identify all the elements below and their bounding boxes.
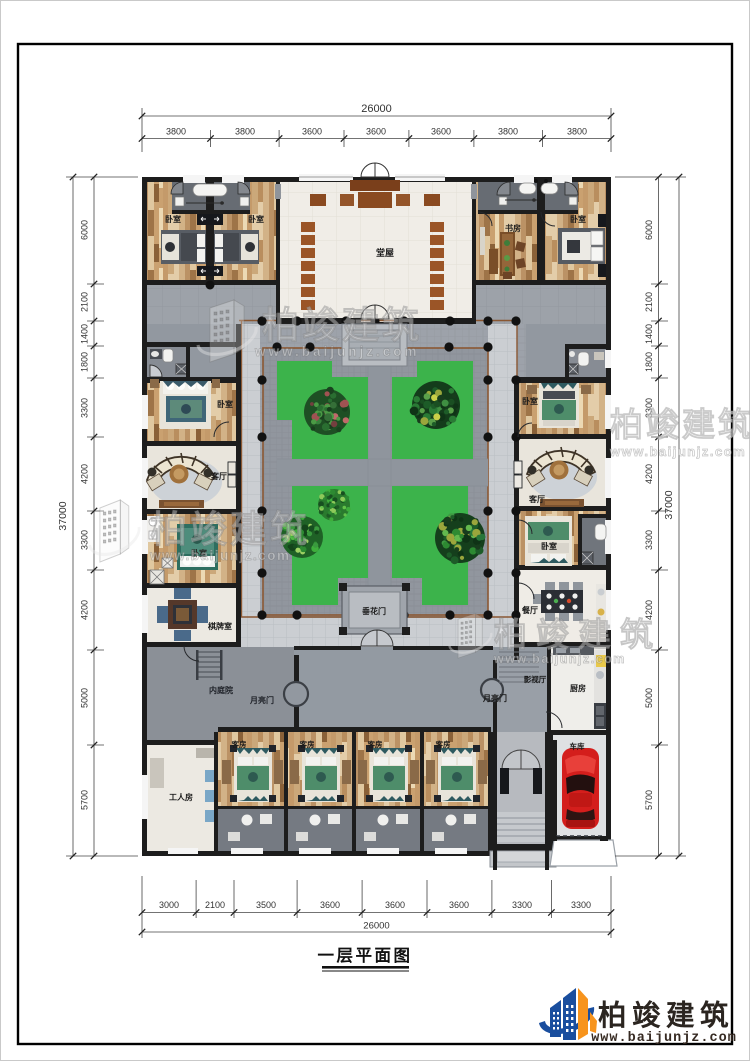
svg-text:客房: 客房	[231, 739, 247, 749]
svg-text:4200: 4200	[644, 464, 654, 484]
svg-text:卧室: 卧室	[570, 214, 586, 224]
svg-text:3600: 3600	[320, 900, 340, 910]
svg-text:1800: 1800	[80, 352, 90, 372]
svg-text:3300: 3300	[512, 900, 532, 910]
svg-text:26000: 26000	[361, 103, 392, 115]
svg-text:棋牌室: 棋牌室	[207, 621, 232, 631]
svg-text:柏竣建筑: 柏竣建筑	[150, 508, 310, 550]
svg-text:1400: 1400	[644, 324, 654, 344]
svg-text:内庭院: 内庭院	[209, 685, 233, 695]
svg-text:3600: 3600	[302, 127, 322, 137]
svg-text:堂屋: 堂屋	[376, 247, 394, 258]
svg-text:6000: 6000	[644, 220, 654, 240]
svg-text:3500: 3500	[256, 900, 276, 910]
svg-text:3600: 3600	[449, 900, 469, 910]
svg-text:5700: 5700	[80, 790, 90, 810]
svg-text:5000: 5000	[644, 688, 654, 708]
svg-text:垂花门: 垂花门	[362, 606, 386, 616]
svg-text:3300: 3300	[644, 530, 654, 550]
svg-text:卧室: 卧室	[165, 214, 181, 224]
svg-text:3800: 3800	[567, 127, 587, 137]
svg-text:6000: 6000	[80, 220, 90, 240]
svg-text:餐厅: 餐厅	[521, 605, 538, 615]
svg-text:4200: 4200	[80, 600, 90, 620]
svg-text:一层平面图: 一层平面图	[318, 946, 413, 965]
svg-text:2100: 2100	[205, 900, 225, 910]
svg-text:柏竣建筑: 柏竣建筑	[610, 406, 750, 443]
svg-text:26000: 26000	[363, 921, 389, 932]
svg-text:卧室: 卧室	[541, 541, 557, 551]
svg-text:www.baijunjz.com: www.baijunjz.com	[493, 652, 626, 666]
svg-text:1800: 1800	[644, 352, 654, 372]
svg-text:2100: 2100	[644, 292, 654, 312]
svg-text:www.baijunjz.com: www.baijunjz.com	[609, 444, 746, 459]
svg-text:3300: 3300	[571, 900, 591, 910]
svg-text:工人房: 工人房	[169, 792, 193, 802]
svg-text:3300: 3300	[80, 398, 90, 418]
svg-text:1400: 1400	[80, 324, 90, 344]
svg-text:月亮门: 月亮门	[249, 695, 274, 705]
svg-text:柏竣建筑: 柏竣建筑	[262, 304, 422, 346]
svg-text:3300: 3300	[80, 530, 90, 550]
svg-text:客厅: 客厅	[528, 494, 545, 504]
svg-text:影视厅: 影视厅	[524, 674, 547, 684]
svg-text:车库: 车库	[570, 741, 585, 751]
svg-text:37000: 37000	[57, 501, 69, 530]
svg-text:2100: 2100	[80, 292, 90, 312]
svg-text:客房: 客房	[435, 739, 451, 749]
svg-text:客房: 客房	[367, 739, 383, 749]
svg-text:客房: 客房	[299, 739, 315, 749]
svg-text:3600: 3600	[431, 127, 451, 137]
svg-text:37000: 37000	[663, 490, 675, 519]
svg-text:3600: 3600	[385, 900, 405, 910]
svg-text:3000: 3000	[159, 900, 179, 910]
svg-text:3800: 3800	[166, 127, 186, 137]
svg-text:www.baijunjz.com: www.baijunjz.com	[149, 548, 291, 563]
svg-text:厨房: 厨房	[570, 683, 586, 693]
svg-text:卧室: 卧室	[217, 399, 233, 409]
svg-text:客厅: 客厅	[210, 471, 227, 481]
svg-text:www.baijunjz.com: www.baijunjz.com	[591, 1031, 737, 1046]
svg-text:5700: 5700	[644, 790, 654, 810]
svg-text:3800: 3800	[235, 127, 255, 137]
svg-text:柏竣建筑: 柏竣建筑	[494, 616, 662, 653]
svg-text:卧室: 卧室	[248, 214, 264, 224]
svg-text:3600: 3600	[366, 127, 386, 137]
svg-text:5000: 5000	[80, 688, 90, 708]
svg-text:月亮门: 月亮门	[482, 693, 507, 703]
svg-text:书房: 书房	[505, 223, 521, 233]
svg-text:柏竣建筑: 柏竣建筑	[598, 999, 734, 1032]
svg-text:3800: 3800	[498, 127, 518, 137]
svg-text:卧室: 卧室	[522, 396, 538, 406]
svg-text:4200: 4200	[80, 464, 90, 484]
svg-text:www.baijunjz.com: www.baijunjz.com	[254, 344, 420, 359]
